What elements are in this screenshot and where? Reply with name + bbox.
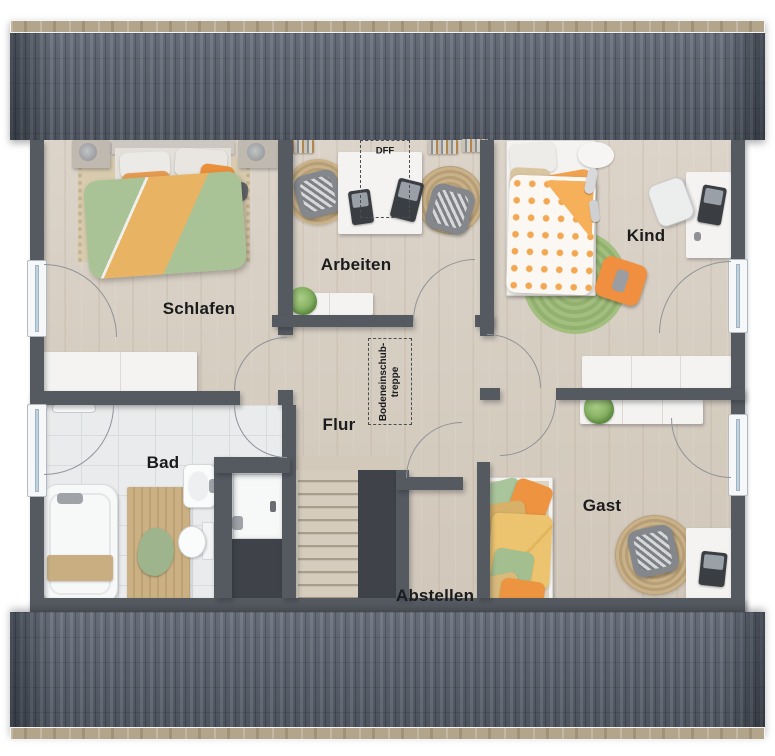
stair-landing — [296, 456, 400, 470]
laptop-guest — [698, 551, 727, 588]
sideboard-seam — [662, 400, 663, 424]
shower-drain — [270, 501, 276, 512]
sideboard-seam — [329, 293, 330, 315]
room-label-kind: Kind — [627, 226, 666, 246]
attic-ladder-box: Bodeneinschub- treppe — [368, 338, 412, 425]
wall-bath-shower — [214, 457, 232, 598]
mouse-kid — [694, 232, 701, 241]
laptop-screen — [703, 188, 723, 206]
wardrobe-seam — [631, 356, 632, 388]
bath-caddy — [47, 555, 113, 581]
roof-eave-board — [10, 727, 765, 740]
window-glass — [736, 419, 740, 491]
lamp-left — [79, 143, 97, 161]
plush-toy — [611, 268, 630, 293]
window-glass — [35, 265, 39, 332]
wall-storage-top — [396, 477, 463, 490]
floorplan-canvas: DFF Bodeneinschub- treppe Schlafen Arbei… — [0, 0, 775, 756]
dresser-bedroom — [43, 352, 197, 392]
bath-faucet — [57, 493, 83, 504]
cloud-shelf — [578, 142, 614, 168]
sink — [183, 464, 216, 508]
laptop-screen — [703, 554, 724, 570]
duvet-double-bed — [83, 171, 247, 280]
room-label-flur: Flur — [323, 415, 356, 435]
wall-outer-bottom — [30, 598, 745, 612]
sideboard-seam — [622, 400, 623, 424]
room-label-abstellen: Abstellen — [396, 586, 474, 606]
roof-window-label: DFF — [376, 146, 394, 157]
wardrobe-seam — [680, 356, 681, 388]
window-kid — [728, 259, 748, 333]
roof-bottom — [10, 612, 765, 740]
wall-corner-bedroom — [278, 390, 293, 405]
wall-bedroom-office — [278, 140, 293, 335]
wall-outer-left — [30, 140, 44, 612]
wall-kid-guest-left — [480, 388, 500, 400]
stairwell-void — [358, 470, 396, 598]
bookshelf-right — [428, 140, 458, 154]
window-glass — [35, 409, 39, 492]
sink-basin — [188, 471, 209, 501]
wardrobe-kid — [582, 356, 731, 388]
chair-cushion — [633, 530, 674, 572]
duvet-kid-polkadot — [506, 175, 596, 296]
toilet-bowl — [178, 526, 206, 558]
attic-ladder-line2: treppe — [390, 366, 401, 397]
wall-outer-right — [731, 140, 745, 612]
wall-storage-guest — [477, 462, 490, 598]
wall-bedroom-bath — [30, 391, 240, 405]
wall-kid-guest-right — [556, 388, 745, 400]
wall-office-kid — [480, 140, 494, 327]
wall-office-bottom-left — [272, 315, 413, 327]
room-label-bad: Bad — [147, 453, 180, 473]
room-label-arbeiten: Arbeiten — [321, 255, 392, 275]
room-label-schlafen: Schlafen — [163, 299, 235, 319]
dresser-seam — [120, 352, 121, 392]
shower-fixture — [232, 516, 243, 530]
chair-cushion — [430, 188, 470, 229]
window-guest — [728, 414, 748, 496]
lamp-right — [247, 143, 265, 161]
room-label-gast: Gast — [583, 496, 622, 516]
wall-shower-top — [214, 457, 290, 473]
roof-window-box: DFF — [360, 140, 410, 218]
chair-cushion — [298, 174, 337, 213]
plant-office — [289, 287, 317, 315]
roof-shingles-bottom — [10, 612, 765, 727]
office-chair-guest — [626, 523, 681, 580]
window-glass — [736, 264, 740, 328]
staircase — [296, 470, 358, 598]
shower-tray — [233, 474, 283, 539]
attic-ladder-line1: Bodeneinschub- — [378, 342, 389, 420]
bathtub — [42, 484, 118, 604]
attic-ladder-label: Bodeneinschub- treppe — [378, 342, 402, 420]
